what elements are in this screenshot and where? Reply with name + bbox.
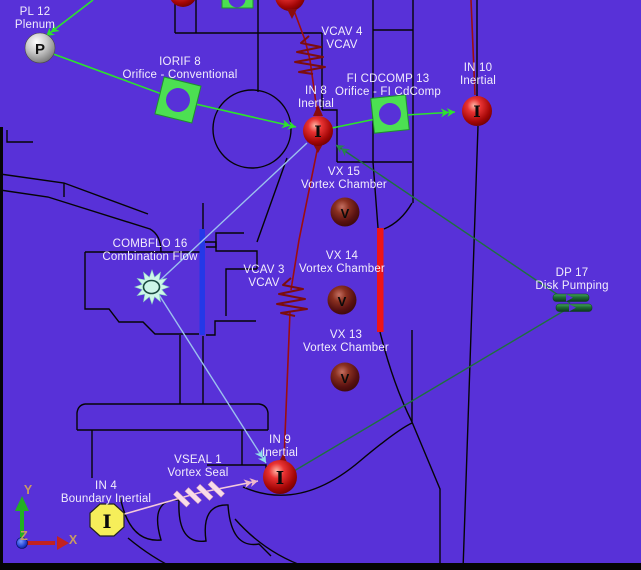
red-marker-bar[interactable] xyxy=(377,228,384,332)
element-vx14-vortex-icon[interactable]: V xyxy=(328,286,357,315)
flow-line-in8-vcav3-in9[interactable] xyxy=(284,146,318,460)
z-axis-label: Z xyxy=(20,529,28,543)
element-iorif8-orifice-icon[interactable] xyxy=(155,77,201,123)
element-vx15-vortex-icon[interactable]: V xyxy=(331,198,360,227)
inertial-glyph: I xyxy=(473,102,480,121)
label-in10: IN 10 Inertial xyxy=(460,62,496,88)
label-vx13: VX 13 Vortex Chamber xyxy=(303,329,389,355)
element-pl12-plenum-icon[interactable]: P xyxy=(25,33,55,63)
label-in4: IN 4 Boundary Inertial xyxy=(61,480,151,506)
element-combflo16-combination-icon[interactable] xyxy=(135,270,169,304)
label-vseal1: VSEAL 1 Vortex Seal xyxy=(167,454,228,480)
label-in9: IN 9 Inertial xyxy=(262,434,298,460)
element-in4-boundary-inertial-icon[interactable]: I xyxy=(90,504,124,536)
label-dp17: DP 17 Disk Pumping xyxy=(535,267,608,293)
element-in10-inertial-icon[interactable]: I xyxy=(462,96,492,126)
element-vseal1-seal-icon[interactable] xyxy=(173,479,225,510)
label-in8: IN 8 Inertial xyxy=(298,85,334,111)
element-dp17-diskpumping-icon[interactable] xyxy=(553,294,592,312)
label-vx14: VX 14 Vortex Chamber xyxy=(299,250,385,276)
inertial-glyph: I xyxy=(314,122,321,141)
inertial-glyph: I xyxy=(276,468,284,489)
y-axis-label: Y xyxy=(24,483,32,497)
element-in9-inertial-icon[interactable]: I xyxy=(263,454,297,494)
label-vcav3: VCAV 3 VCAV xyxy=(243,264,284,290)
partial-sphere-icon[interactable] xyxy=(169,0,197,7)
label-vx15: VX 15 Vortex Chamber xyxy=(301,166,387,192)
element-in8-inertial-icon[interactable]: I xyxy=(303,105,333,153)
element-ficdcomp13-orifice-icon[interactable] xyxy=(371,95,409,133)
label-iorif8: IORIF 8 Orifice - Conventional xyxy=(123,56,238,82)
partial-top-elements xyxy=(169,0,305,19)
label-pl12: PL 12 Plenum xyxy=(15,6,55,32)
partial-orifice-icon[interactable] xyxy=(222,0,253,8)
vortex-glyph: V xyxy=(341,371,350,386)
vortex-glyph: V xyxy=(338,294,347,309)
vortex-glyph: V xyxy=(341,206,350,221)
plenum-glyph: P xyxy=(35,41,45,58)
element-vx13-vortex-icon[interactable]: V xyxy=(331,363,360,392)
label-vcav4: VCAV 4 VCAV xyxy=(321,26,362,52)
x-axis-label: X xyxy=(69,533,77,547)
inertial-glyph: I xyxy=(103,511,112,533)
label-ficdcomp13: FI CDCOMP 13 Orifice - FI CdComp xyxy=(335,73,441,99)
label-combflo16: COMBFLO 16 Combination Flow xyxy=(102,238,197,264)
flow-line-combflo16-in9[interactable] xyxy=(156,290,266,463)
blue-marker-bar[interactable] xyxy=(200,229,206,335)
flow-network-canvas[interactable]: P I I I xyxy=(0,0,641,570)
